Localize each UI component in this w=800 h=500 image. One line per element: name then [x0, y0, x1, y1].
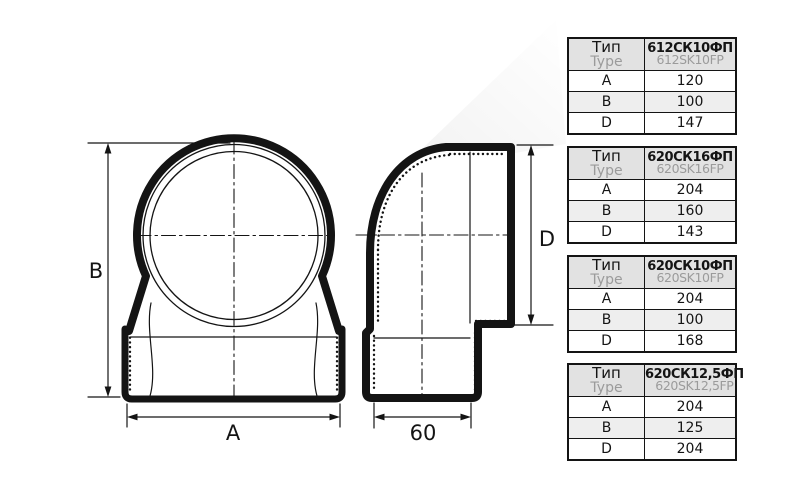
arrowhead	[105, 387, 112, 398]
table-row: B 125	[569, 417, 735, 438]
front-view	[88, 138, 342, 427]
dim-letter: D	[569, 113, 645, 133]
arrowhead	[105, 143, 112, 154]
dim-value: 204	[645, 180, 735, 200]
dim-value: 168	[645, 331, 735, 351]
spec-table: Тип Type 620СК16ФП 620SK16FP A 204 B 160…	[567, 146, 737, 244]
table-row: A 204	[569, 179, 735, 200]
dim-letter: D	[569, 439, 645, 459]
model-code-en: 620SK12,5FP	[655, 380, 733, 393]
type-header-cell: Тип Type	[569, 257, 645, 288]
model-code-en: 620SK10FP	[656, 272, 723, 285]
table-header: Тип Type 620СК10ФП 620SK10FP	[569, 257, 735, 288]
arrowhead	[461, 414, 472, 421]
table-row: B 100	[569, 309, 735, 330]
dim-label-depth: 60	[410, 421, 437, 445]
arrowhead	[127, 414, 138, 421]
model-code-cell: 620СК12,5ФП 620SK12,5FP	[645, 365, 744, 396]
model-code-cell: 612СК10ФП 612SK10FP	[645, 39, 735, 70]
elbow-outline	[366, 147, 511, 398]
dim-value: 100	[645, 92, 735, 112]
table-row: D 168	[569, 330, 735, 351]
spec-table: Тип Type 612СК10ФП 612SK10FP A 120 B 100…	[567, 37, 737, 135]
table-header: Тип Type 620СК12,5ФП 620SK12,5FP	[569, 365, 735, 396]
dim-label-d: D	[539, 227, 555, 251]
arrowhead	[374, 414, 385, 421]
spec-table: Тип Type 620СК12,5ФП 620SK12,5FP A 204 B…	[567, 363, 737, 461]
model-code-en: 620SK16FP	[656, 163, 723, 176]
arrowhead	[330, 414, 341, 421]
dim-value: 147	[645, 113, 735, 133]
table-header: Тип Type 612СК10ФП 612SK10FP	[569, 39, 735, 70]
spec-table: Тип Type 620СК10ФП 620SK10FP A 204 B 100…	[567, 255, 737, 353]
dim-label-a: A	[226, 421, 240, 445]
type-label-en: Type	[590, 273, 622, 287]
table-row: B 100	[569, 91, 735, 112]
dim-letter: B	[569, 310, 645, 330]
table-row: B 160	[569, 200, 735, 221]
dim-value: 120	[645, 71, 735, 91]
table-row: A 204	[569, 288, 735, 309]
type-header-cell: Тип Type	[569, 365, 645, 396]
dim-value: 204	[645, 289, 735, 309]
dim-letter: B	[569, 92, 645, 112]
dim-letter: D	[569, 222, 645, 242]
arrowhead	[528, 315, 535, 326]
type-label-en: Type	[590, 164, 622, 178]
dim-label-b: B	[89, 259, 103, 283]
dim-letter: A	[569, 180, 645, 200]
dim-letter: B	[569, 201, 645, 221]
dim-value: 160	[645, 201, 735, 221]
dim-letter: B	[569, 418, 645, 438]
dim-value: 204	[645, 439, 735, 459]
table-row: A 204	[569, 396, 735, 417]
type-header-cell: Тип Type	[569, 39, 645, 70]
dim-letter: A	[569, 289, 645, 309]
dim-value: 125	[645, 418, 735, 438]
side-view	[356, 145, 553, 428]
table-row: A 120	[569, 70, 735, 91]
dim-letter: A	[569, 397, 645, 417]
model-code-cell: 620СК10ФП 620SK10FP	[645, 257, 735, 288]
model-code-cell: 620СК16ФП 620SK16FP	[645, 148, 735, 179]
dim-letter: A	[569, 71, 645, 91]
dim-value: 143	[645, 222, 735, 242]
type-label-en: Type	[590, 55, 622, 69]
table-row: D 204	[569, 438, 735, 459]
dim-value: 204	[645, 397, 735, 417]
table-header: Тип Type 620СК16ФП 620SK16FP	[569, 148, 735, 179]
type-label-en: Type	[590, 381, 622, 395]
dim-value: 100	[645, 310, 735, 330]
type-header-cell: Тип Type	[569, 148, 645, 179]
table-row: D 147	[569, 112, 735, 133]
table-row: D 143	[569, 221, 735, 242]
catalog-page: B A D 60 Тип Type 612СК10ФП 612SK10FP A …	[0, 0, 800, 500]
dim-letter: D	[569, 331, 645, 351]
model-code-en: 612SK10FP	[656, 54, 723, 67]
